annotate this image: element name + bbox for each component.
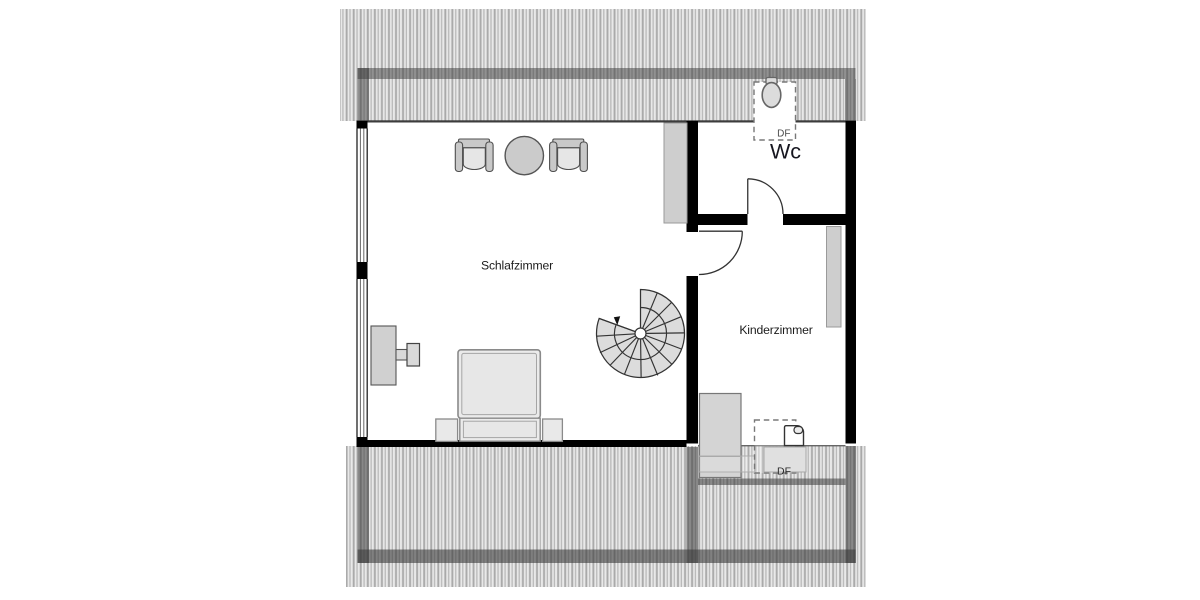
svg-text:DF: DF (777, 466, 791, 478)
svg-text:Kinderzimmer: Kinderzimmer (739, 323, 812, 337)
svg-text:Schlafzimmer: Schlafzimmer (481, 259, 553, 273)
svg-text:DF: DF (777, 128, 790, 139)
svg-text:Wc: Wc (770, 140, 801, 164)
